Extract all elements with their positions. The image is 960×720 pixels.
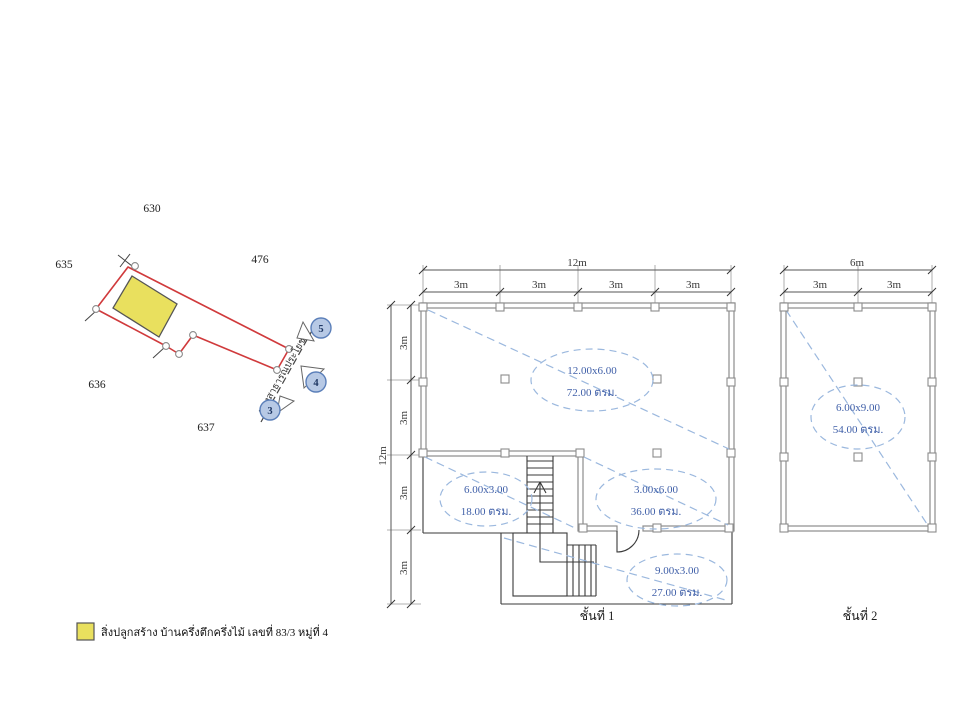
floor1-width-seg2: 3m: [532, 279, 547, 291]
room-area-label: 54.00 ตรม.: [833, 424, 884, 436]
survey-marker-4: 4: [301, 366, 326, 392]
room-size-label: 6.00x3.00: [464, 484, 509, 496]
floor1-width-total: 12m: [567, 257, 587, 269]
room-area-label: 36.00 ตรม.: [631, 506, 682, 518]
floor2-title: ชั้นที่ 2: [843, 606, 878, 623]
floor1-columns: [419, 303, 735, 532]
parcel-label-635: 635: [55, 259, 73, 271]
legend-label: สิ่งปลูกสร้าง บ้านครึ่งตึกครึ่งไม้ เลขที…: [101, 624, 329, 639]
room-main-hall: 12.00x6.00 72.00 ตรม.: [531, 349, 653, 411]
floor1-height-seg3: 3m: [398, 486, 410, 501]
room-size-label: 9.00x3.00: [655, 565, 700, 577]
architectural-drawing-page: 630 635 476 636 637 ทางสาธารณประโยชน์: [0, 0, 960, 720]
floor1-height-seg2: 3m: [398, 411, 410, 426]
floor2-width-seg1: 3m: [813, 279, 828, 291]
parcel-label-630: 630: [143, 203, 161, 215]
land-boundary-polygon: [96, 267, 289, 370]
room-area-label: 27.00 ตรม.: [652, 587, 703, 599]
room-size-label: 6.00x9.00: [836, 402, 881, 414]
floor1-height-seg1: 3m: [398, 336, 410, 351]
room-area-label: 18.00 ตรม.: [461, 506, 512, 518]
legend: สิ่งปลูกสร้าง บ้านครึ่งตึกครึ่งไม้ เลขที…: [77, 623, 329, 640]
floor1-height-seg4: 3m: [398, 561, 410, 576]
marker-5-label: 5: [318, 324, 323, 335]
room-area-label: 72.00 ตรม.: [567, 387, 618, 399]
parcel-label-637: 637: [197, 422, 215, 434]
boundary-vertices: [93, 263, 293, 374]
floor1-walls: [421, 303, 735, 531]
parcel-label-476: 476: [251, 254, 269, 266]
floor2-plan: 6m 3m 3m: [780, 257, 936, 623]
room-size-label: 12.00x6.00: [567, 365, 617, 377]
stairs-lower-flight: [567, 545, 596, 596]
parcel-label-636: 636: [88, 379, 106, 391]
room-right: 3.00x6.00 36.00 ตรม.: [596, 469, 716, 529]
floor1-title: ชั้นที่ 1: [580, 606, 615, 623]
floor1-top-dimension: 12m 3m 3m 3m 3m: [419, 257, 735, 303]
floor1-width-seg1: 3m: [454, 279, 469, 291]
marker-4-label: 4: [313, 378, 319, 389]
floor1-left-dimension: 12m 3m 3m 3m 3m: [377, 301, 421, 608]
room-ellipse-36: [596, 469, 716, 529]
door-arc: [617, 530, 639, 552]
room-bottom: 9.00x3.00 27.00 ตรม.: [627, 554, 727, 606]
floor2-diagonal: [786, 310, 929, 527]
floor2-top-dimension: 6m 3m 3m: [780, 257, 936, 303]
survey-marker-5: 5: [297, 318, 331, 341]
room-size-label: 3.00x6.00: [634, 484, 679, 496]
legend-swatch: [77, 623, 94, 640]
floor2-width-seg2: 3m: [887, 279, 902, 291]
marker-3-label: 3: [267, 406, 272, 417]
room-floor2: 6.00x9.00 54.00 ตรม.: [811, 385, 905, 449]
floor1-width-seg3: 3m: [609, 279, 624, 291]
floor1-plan: 12m 3m 3m 3m 3m 12m: [377, 257, 735, 623]
room-ellipse-54: [811, 385, 905, 449]
floor1-width-seg4: 3m: [686, 279, 701, 291]
building-footprint: [113, 276, 177, 337]
floor1-height-total: 12m: [377, 446, 389, 466]
room-left: 6.00x3.00 18.00 ตรม.: [440, 472, 532, 526]
room-ellipse-72: [531, 349, 653, 411]
site-plan: 630 635 476 636 637 ทางสาธารณประโยชน์: [55, 203, 331, 434]
floor2-width-total: 6m: [850, 257, 865, 269]
drawing-canvas: 630 635 476 636 637 ทางสาธารณประโยชน์: [0, 0, 960, 720]
